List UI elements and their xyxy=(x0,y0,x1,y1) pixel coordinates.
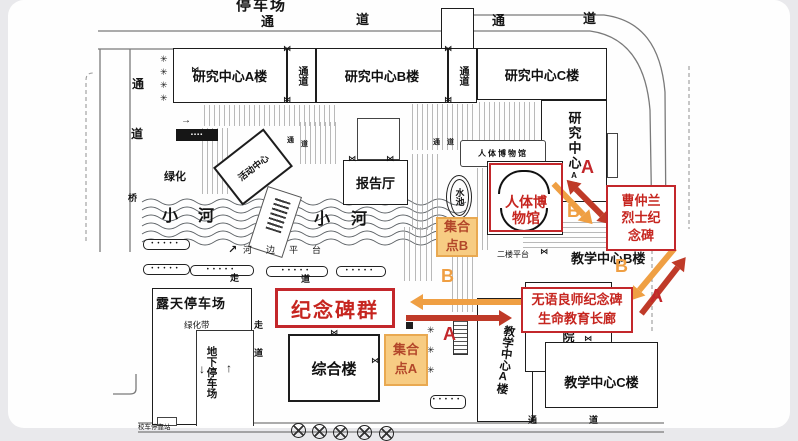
greenery-label: 绿化 xyxy=(164,172,186,183)
route-a-arrow-east xyxy=(406,309,512,326)
road-label: 道 xyxy=(589,416,598,425)
point-b-line1: 集合 xyxy=(438,218,476,237)
building-teaching-c: 教学中心C楼 xyxy=(545,342,658,408)
road-label: 道 xyxy=(583,12,596,25)
tiny-road-char: 通 xyxy=(433,139,440,146)
silent-mentor-box: 无语良师纪念碑 生命教育长廊 xyxy=(521,287,633,333)
cao-line3: 念碑 xyxy=(608,227,674,245)
assembly-point-b-box: 集合 点B xyxy=(436,217,478,257)
wing-annex xyxy=(607,133,618,178)
ramp-down-arrow: ↓ xyxy=(199,363,205,375)
route-b-marker: B xyxy=(567,202,580,220)
riverside-platform-label: 河边平台 xyxy=(243,246,335,255)
bridge-steps xyxy=(266,196,292,233)
door-mark: ⋈ xyxy=(540,248,548,256)
fan-tree-icon xyxy=(379,426,394,441)
river-label: 河 xyxy=(198,209,214,225)
river-label: 小 xyxy=(162,209,178,225)
bench: ••••• xyxy=(190,265,254,276)
walkway-hatch xyxy=(479,102,537,140)
corridor-2: 通道 xyxy=(448,48,477,103)
complex-label: 综合楼 xyxy=(311,358,356,379)
fan-tree-icon xyxy=(291,423,306,438)
bench: ••••• xyxy=(143,239,190,250)
river-label: 小 xyxy=(314,212,330,228)
door-mark: ⋈ xyxy=(371,357,379,365)
walkway-label: 走 xyxy=(230,274,239,283)
small-sign: ▪▪▪▪ xyxy=(176,129,218,141)
building-report-hall: 报告厅 xyxy=(343,160,408,205)
pool: 水池 xyxy=(446,175,472,219)
fan-tree-icon xyxy=(357,425,372,440)
report-hall-label: 报告厅 xyxy=(356,173,395,192)
building-research-a-label: 研究中心A楼 xyxy=(193,66,267,85)
ramp-up-arrow: ↑ xyxy=(226,362,232,374)
corridor-1-label: 通道 xyxy=(294,66,309,86)
museum-annotation-line2: 物馆 xyxy=(491,210,561,226)
route-b-marker: B xyxy=(441,267,454,285)
point-b-line2: 点B xyxy=(438,237,476,256)
river-label: 河 xyxy=(351,212,367,228)
building-research-a: 研究中心A楼 xyxy=(173,48,287,103)
teaching-a-label: 教学中心A楼 xyxy=(493,325,517,396)
green-belt-label: 绿化带 xyxy=(184,321,210,330)
tiny-road-char: 道 xyxy=(447,139,454,146)
stair-strip xyxy=(415,227,423,281)
road-label: 通 xyxy=(528,416,537,425)
small-sign-arrow: → xyxy=(181,116,191,126)
corridor-1: 通道 xyxy=(287,48,316,103)
road-label: 通 xyxy=(492,14,505,27)
tiny-road-char: 道 xyxy=(301,141,308,148)
door-mark: ⋈ xyxy=(348,155,356,163)
campus-map: ↗ 研究中心A楼 通道 研究中心B楼 通道 研究中心C楼 研究中心A楼 报告厅 … xyxy=(0,0,798,441)
tree-icon: ✳ xyxy=(427,346,435,355)
tree-icon: ✳ xyxy=(160,94,168,103)
road-label: 道 xyxy=(356,13,369,26)
building-research-c-label: 研究中心C楼 xyxy=(505,65,579,84)
teaching-c-label: 教学中心C楼 xyxy=(564,372,638,391)
monument-group-label: 纪念碑群 xyxy=(278,294,392,323)
cao-memorial-box: 曹仲兰 烈士纪 念碑 xyxy=(606,185,676,251)
tree-icon: ✳ xyxy=(160,68,168,77)
tree-icon: ✳ xyxy=(160,55,168,64)
fan-tree-icon xyxy=(312,424,327,439)
tree-icon: ✳ xyxy=(160,81,168,90)
door-mark: ⋈ xyxy=(386,155,394,163)
wuyu-line1: 无语良师纪念碑 xyxy=(523,291,631,310)
building-research-b: 研究中心B楼 xyxy=(316,48,448,103)
second-floor-platform-label: 二楼平台 xyxy=(497,251,529,259)
stair-strip xyxy=(426,227,434,281)
top-parking-label: 停车场 xyxy=(236,0,287,13)
building-research-b-label: 研究中心B楼 xyxy=(345,66,419,85)
door-mark: ⋈ xyxy=(444,96,452,104)
walkway-label: 道 xyxy=(301,275,310,284)
route-a-marker: A xyxy=(581,158,594,176)
walkway-label: 道 xyxy=(254,349,263,358)
point-a-line1: 集合 xyxy=(386,341,426,360)
bus-stop-label: 校车停靠站 xyxy=(138,425,171,432)
route-b-marker: B xyxy=(615,257,628,275)
underground-ramp-court xyxy=(196,330,254,426)
door-mark: ⋈ xyxy=(283,96,291,104)
tiny-road-char: 通 xyxy=(287,137,294,144)
route-a-marker: A xyxy=(443,325,456,343)
stair-strip xyxy=(404,227,412,281)
bench: ••••• xyxy=(336,266,386,277)
underground-parking-label: 地下停车场 xyxy=(206,346,217,408)
door-mark: ⋈ xyxy=(191,66,199,74)
walkway-label: 走 xyxy=(254,321,263,330)
bridge-arrow-ne: ↗ xyxy=(228,245,237,256)
pool-inner-ring xyxy=(450,179,469,216)
road-label: 通 xyxy=(261,15,274,28)
route-a-marker: A xyxy=(650,287,663,305)
bench: ••••• xyxy=(143,264,190,275)
fan-tree-icon xyxy=(333,425,348,440)
door-mark: ⋈ xyxy=(444,45,452,53)
monument-group-box: 纪念碑群 xyxy=(275,288,395,328)
museum-annotation-box: 人体博 物馆 xyxy=(489,163,563,232)
building-complex: 综合楼 xyxy=(288,334,380,402)
museum-plain-label: 人体博物馆 xyxy=(478,148,528,159)
tree-icon: ✳ xyxy=(427,326,435,335)
teaching-b-label: 教学中心B楼 xyxy=(571,252,645,265)
cao-line2: 烈士纪 xyxy=(608,209,674,227)
bench: ••••• xyxy=(430,395,466,409)
point-a-line2: 点A xyxy=(386,360,426,379)
door-mark: ⋈ xyxy=(330,329,338,337)
door-mark: ⋈ xyxy=(584,335,592,343)
activity-center-label: 活动中心 xyxy=(235,151,271,183)
wuyu-line2: 生命教育长廊 xyxy=(523,310,631,329)
bench: ••••• xyxy=(266,266,328,277)
corridor-2-label: 通道 xyxy=(455,66,470,86)
road-label: 通 xyxy=(132,78,144,90)
open-parking-label: 露天停车场 xyxy=(156,297,226,310)
building-research-c: 研究中心C楼 xyxy=(477,48,607,100)
bridge-label: 桥 xyxy=(128,194,137,203)
assembly-point-a-box: 集合 点A xyxy=(384,334,428,386)
road-label: 道 xyxy=(131,128,143,140)
cao-line1: 曹仲兰 xyxy=(608,192,674,210)
tree-icon: ✳ xyxy=(427,366,435,375)
museum-annotation-line1: 人体博 xyxy=(491,194,561,210)
door-mark: ⋈ xyxy=(283,45,291,53)
